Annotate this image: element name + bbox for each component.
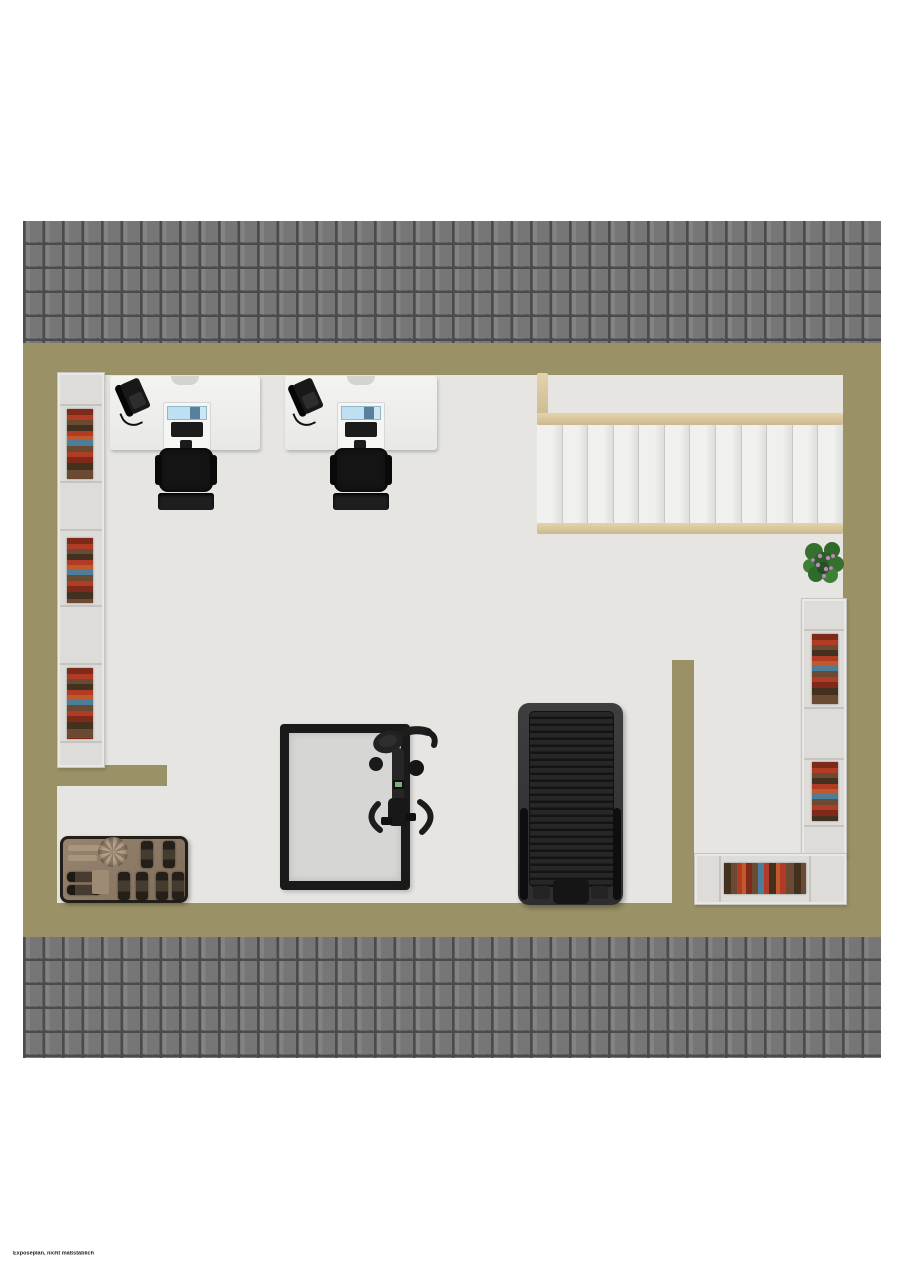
books-row: [67, 668, 93, 739]
monitor-screen: [167, 406, 207, 420]
roof-tiles-pattern: [23, 937, 881, 1058]
roof-bottom: [23, 937, 881, 1058]
floor-plan-page: Exposeplan, nicht maßstäblich: [0, 0, 905, 1280]
treadmill-motor: [553, 879, 589, 904]
stair-step: [665, 425, 691, 523]
dumbbell: [118, 872, 130, 900]
chair-armrest: [155, 455, 162, 485]
weight-plate: [98, 837, 128, 867]
stair-step: [614, 425, 640, 523]
treadmill-foot: [591, 886, 608, 899]
stair-step: [793, 425, 819, 523]
treadmill-belt: [529, 711, 614, 887]
potted-plant: [800, 538, 846, 584]
treadmill-rail: [520, 808, 528, 900]
chair-armrest: [385, 455, 392, 485]
cable-notch: [171, 376, 199, 385]
keyboard: [345, 422, 377, 437]
stair-step: [716, 425, 742, 523]
disclaimer-text: Exposeplan, nicht maßstäblich: [13, 1251, 94, 1257]
stair-step: [690, 425, 716, 523]
chair-armrest: [210, 455, 217, 485]
rack-block: [92, 870, 109, 894]
staircase-steps: [537, 425, 843, 523]
wall-stub-left: [57, 765, 167, 786]
monitor-screen: [341, 406, 381, 420]
cable-notch: [347, 376, 375, 385]
wall-stub-right: [672, 660, 694, 903]
treadmill-rail: [613, 808, 621, 900]
books-row: [812, 634, 838, 704]
chair-base: [333, 493, 389, 510]
shelf-divider: [804, 629, 844, 631]
bookshelf-right: [801, 598, 847, 857]
shelf-divider: [60, 663, 102, 665]
rack-pad: [68, 845, 102, 851]
dumbbell-rack: [60, 836, 188, 903]
shelf-divider: [60, 404, 102, 406]
plant-foliage: [800, 538, 846, 584]
shelf-divider: [804, 758, 844, 760]
stair-step: [563, 425, 589, 523]
stair-step: [818, 425, 843, 523]
stair-step: [537, 425, 563, 523]
dumbbell: [141, 841, 153, 868]
stair-step: [742, 425, 768, 523]
office-chair-2: [330, 448, 392, 510]
stair-step: [588, 425, 614, 523]
workstation-1: [163, 402, 211, 450]
exercise-bike-shape: [362, 722, 442, 840]
chair-seat: [334, 448, 388, 492]
shelf-divider: [804, 707, 844, 709]
shelf-divider: [809, 856, 811, 902]
bookshelf-bottom-right: [694, 853, 847, 905]
roof-tiles-pattern: [23, 221, 881, 343]
office-chair-1: [155, 448, 217, 510]
stair-rail-top: [537, 413, 843, 425]
treadmill-foot: [533, 886, 550, 899]
exercise-bike: [362, 722, 442, 840]
dumbbell: [136, 872, 148, 900]
workstation-2: [337, 402, 385, 450]
chair-armrest: [330, 455, 337, 485]
shelf-divider: [804, 825, 844, 827]
treadmill: [518, 703, 623, 905]
shelf-divider: [60, 529, 102, 531]
dumbbell: [172, 872, 184, 900]
books-row: [812, 762, 838, 821]
keyboard: [171, 422, 203, 437]
books-row: [67, 409, 93, 479]
shelf-divider: [60, 481, 102, 483]
shelf-divider: [60, 605, 102, 607]
dumbbell: [163, 841, 175, 868]
rack-pad: [68, 855, 97, 861]
stair-step: [639, 425, 665, 523]
roof-top: [23, 221, 881, 343]
dumbbell: [156, 872, 168, 900]
books-row: [67, 538, 93, 603]
books-row: [724, 863, 806, 894]
shelf-divider: [719, 856, 721, 902]
stair-rail-bottom: [537, 523, 843, 534]
stair-step: [767, 425, 793, 523]
shelf-divider: [60, 741, 102, 743]
chair-base: [158, 493, 214, 510]
chair-seat: [159, 448, 213, 492]
bookshelf-left: [57, 372, 105, 768]
